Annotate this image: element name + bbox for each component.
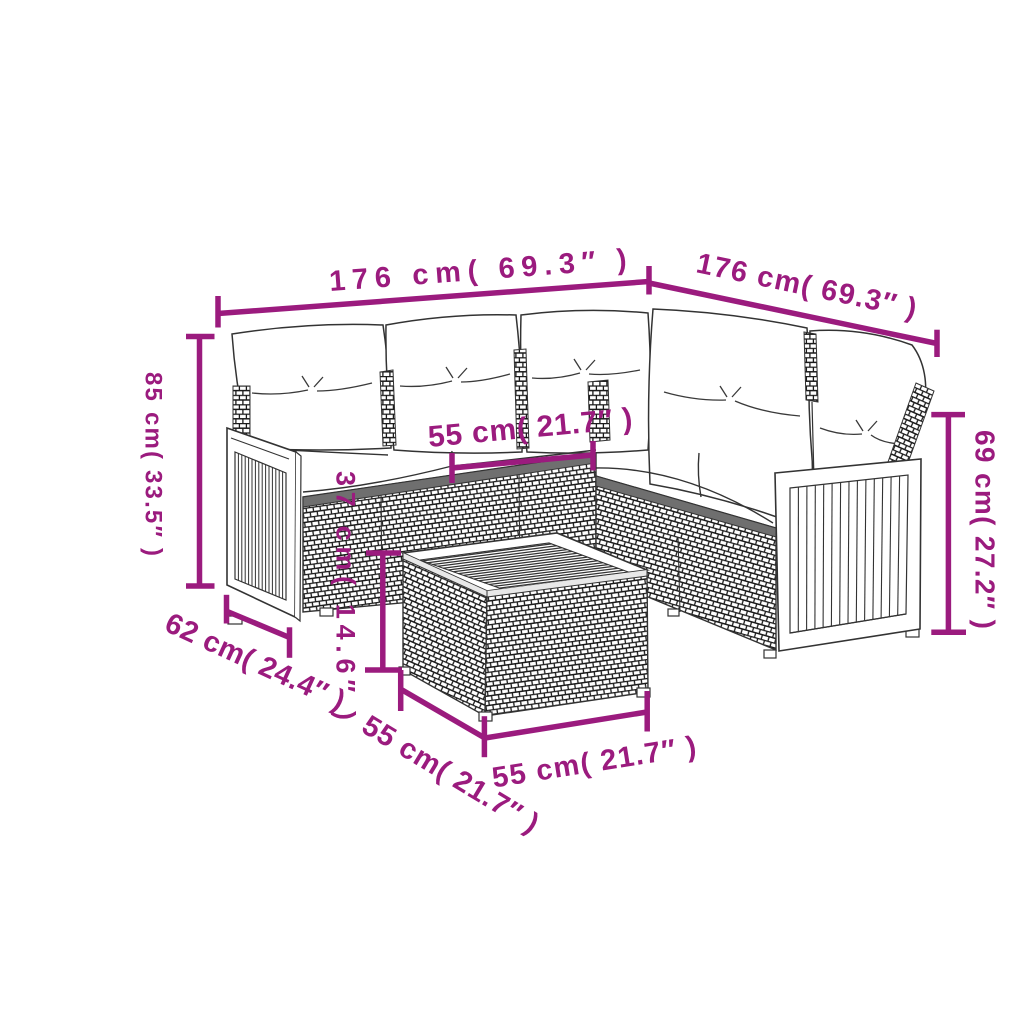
svg-text:85 cm( 33.5″ ): 85 cm( 33.5″ ) xyxy=(140,372,167,556)
svg-text:69 cm( 27.2″ ): 69 cm( 27.2″ ) xyxy=(970,430,1001,629)
